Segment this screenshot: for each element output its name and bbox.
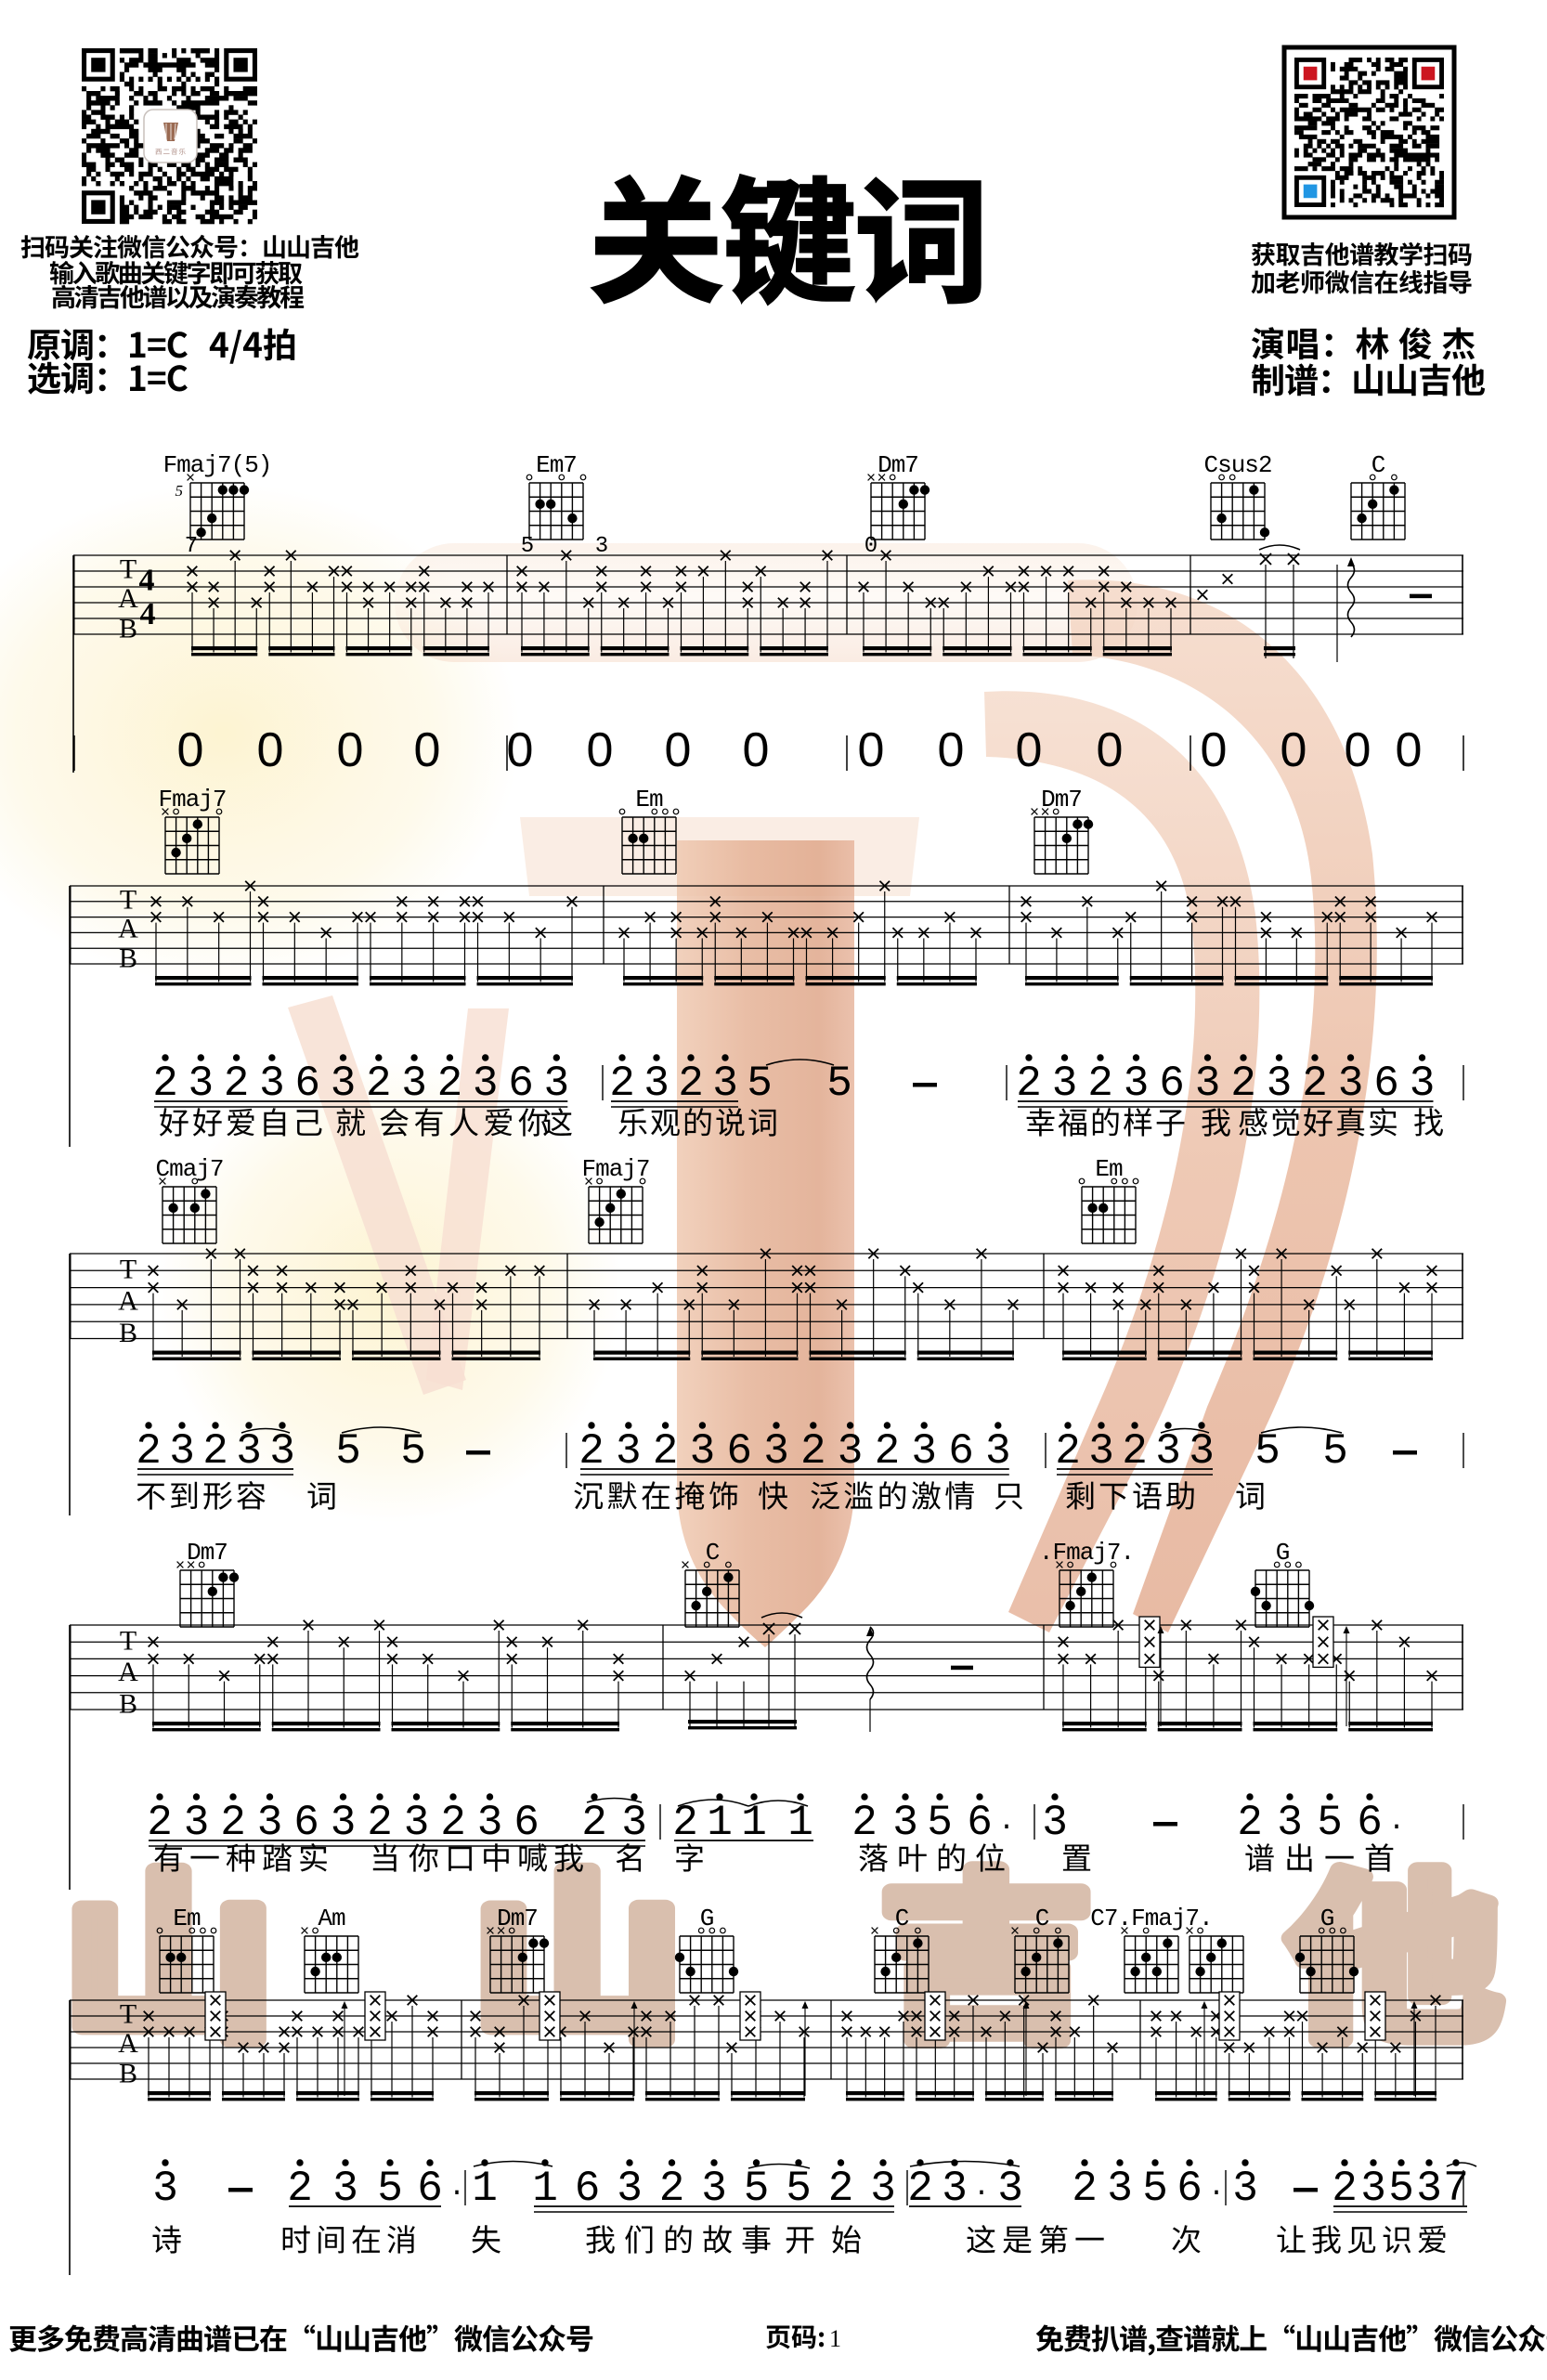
svg-text:容: 容: [236, 1472, 270, 1516]
svg-text:的: 的: [1090, 1099, 1124, 1143]
svg-text:掩: 掩: [675, 1472, 709, 1516]
svg-text:3: 3: [269, 1427, 295, 1476]
svg-text:子: 子: [1155, 1099, 1189, 1143]
svg-text:3: 3: [942, 2165, 968, 2213]
svg-text:3: 3: [1155, 1427, 1181, 1476]
svg-text:观: 观: [650, 1099, 684, 1143]
svg-text:是: 是: [1002, 2216, 1036, 2260]
svg-text:说: 说: [715, 1099, 749, 1143]
svg-text:诗: 诗: [151, 2216, 186, 2260]
svg-text:快: 快: [758, 1472, 792, 1516]
svg-text:中: 中: [481, 1834, 515, 1879]
svg-text:3: 3: [1107, 2165, 1133, 2213]
svg-text:乐: 乐: [617, 1099, 652, 1143]
svg-text:Fmaj7(5): Fmaj7(5): [163, 451, 272, 479]
svg-text:5: 5: [377, 2165, 403, 2213]
svg-text:B: B: [119, 943, 137, 973]
svg-text:失: 失: [471, 2216, 505, 2260]
svg-text:0: 0: [507, 723, 534, 777]
svg-text:2: 2: [1122, 1427, 1148, 1476]
svg-text:0: 0: [587, 723, 614, 777]
svg-text:实: 实: [1368, 1099, 1402, 1143]
svg-text:B: B: [119, 1318, 137, 1348]
svg-text:Fmaj7: Fmaj7: [581, 1155, 649, 1183]
svg-text:3: 3: [985, 1427, 1011, 1476]
svg-text:落: 落: [858, 1834, 892, 1879]
svg-text:在: 在: [641, 1472, 675, 1516]
svg-text:4/4拍: 4/4拍: [209, 318, 297, 368]
svg-text:Csus2: Csus2: [1203, 451, 1271, 479]
svg-text:0: 0: [938, 723, 965, 777]
svg-text:这: 这: [966, 2216, 1000, 2260]
svg-text:的: 的: [877, 1472, 912, 1516]
svg-text:0: 0: [665, 723, 692, 777]
svg-text:3: 3: [616, 1427, 642, 1476]
svg-text:次: 次: [1171, 2216, 1205, 2260]
svg-text:更多免费高清曲谱已在“山山吉他”微信公众号: 更多免费高清曲谱已在“山山吉他”微信公众号: [8, 2316, 593, 2358]
svg-text:3: 3: [331, 1799, 357, 1847]
svg-text:0: 0: [257, 723, 284, 777]
svg-text:加老师微信在线指导: 加老师微信在线指导: [1251, 263, 1473, 299]
svg-text:3: 3: [595, 534, 608, 559]
svg-text:会: 会: [379, 1099, 413, 1143]
svg-text:0: 0: [1280, 723, 1307, 777]
svg-text:己: 己: [292, 1099, 327, 1143]
svg-text:间: 间: [316, 2216, 350, 2260]
svg-text:爱: 爱: [1417, 2216, 1451, 2260]
svg-text:我: 我: [553, 1834, 588, 1879]
svg-text:在: 在: [351, 2216, 385, 2260]
svg-text:T: T: [120, 884, 136, 915]
svg-text:0: 0: [1201, 723, 1228, 777]
svg-text:叶: 叶: [897, 1834, 931, 1879]
svg-text:Em7: Em7: [536, 451, 577, 479]
svg-text:到: 到: [169, 1472, 203, 1516]
svg-text:种: 种: [226, 1834, 260, 1879]
svg-text:A: A: [118, 1657, 138, 1687]
svg-text:2: 2: [800, 1427, 826, 1476]
svg-text:3: 3: [763, 1427, 789, 1476]
svg-text:1: 1: [707, 1799, 733, 1847]
svg-text:第: 第: [1038, 2216, 1072, 2260]
svg-text:1: 1: [472, 2165, 498, 2213]
svg-text:1: 1: [787, 1799, 813, 1847]
svg-text:名: 名: [615, 1834, 649, 1879]
svg-text:0: 0: [864, 534, 877, 559]
svg-text:识: 识: [1382, 2216, 1416, 2260]
svg-text:喊: 喊: [517, 1834, 552, 1879]
svg-text:0: 0: [743, 723, 770, 777]
svg-text:A: A: [118, 2028, 138, 2059]
svg-text:2: 2: [1072, 2165, 1098, 2213]
svg-text:1: 1: [741, 1799, 767, 1847]
svg-text:词: 词: [1235, 1472, 1269, 1516]
svg-text:3: 3: [1416, 2165, 1442, 2213]
svg-text:3: 3: [332, 2165, 358, 2213]
svg-text:5: 5: [335, 1427, 361, 1476]
svg-text:滥: 滥: [843, 1472, 877, 1516]
svg-text:5: 5: [786, 2165, 812, 2213]
svg-text:们: 们: [624, 2216, 658, 2260]
svg-text:6: 6: [575, 2165, 601, 2213]
svg-text:B: B: [119, 2058, 137, 2088]
svg-text:爱: 爱: [484, 1099, 518, 1143]
svg-text:B: B: [119, 1689, 137, 1720]
svg-text:Fmaj7: Fmaj7: [158, 786, 226, 813]
svg-text:高清吉他谱以及演奏教程: 高清吉他谱以及演奏教程: [51, 278, 305, 314]
svg-text:0: 0: [177, 723, 204, 777]
svg-text:3: 3: [690, 1427, 716, 1476]
svg-text:口: 口: [445, 1834, 479, 1879]
svg-text:·: ·: [448, 2178, 465, 2209]
svg-text:Em: Em: [173, 1905, 201, 1932]
svg-text:3: 3: [152, 2165, 178, 2213]
svg-text:2: 2: [136, 1427, 162, 1476]
svg-text:谱: 谱: [1244, 1834, 1279, 1879]
svg-text:选调：1=C: 选调：1=C: [27, 351, 188, 401]
svg-text:我: 我: [1201, 1099, 1235, 1143]
svg-text:2: 2: [875, 1427, 901, 1476]
svg-text:位: 位: [975, 1834, 1009, 1879]
svg-text:饰: 饰: [708, 1472, 743, 1516]
svg-text:一: 一: [1324, 1834, 1358, 1879]
svg-text:2: 2: [828, 2165, 854, 2213]
svg-text:·: ·: [1208, 2178, 1225, 2209]
svg-text:的: 的: [936, 1834, 970, 1879]
svg-text:2: 2: [287, 2165, 313, 2213]
svg-text:样: 样: [1123, 1099, 1157, 1143]
svg-text:5: 5: [744, 2165, 770, 2213]
svg-text:0: 0: [1345, 723, 1371, 777]
svg-text:好: 好: [1303, 1099, 1337, 1143]
svg-text:T: T: [120, 554, 136, 585]
svg-text:0: 0: [414, 723, 441, 777]
svg-text:3: 3: [911, 1427, 937, 1476]
svg-text:情: 情: [944, 1472, 978, 1516]
svg-text:词: 词: [306, 1472, 341, 1516]
svg-text:制谱：山山吉他: 制谱：山山吉他: [1251, 353, 1486, 403]
svg-text:字: 字: [674, 1834, 708, 1879]
svg-text:开: 开: [785, 2216, 819, 2260]
svg-text:A: A: [118, 583, 138, 614]
svg-text:3: 3: [617, 2165, 643, 2213]
svg-text:2: 2: [907, 2165, 933, 2213]
svg-text:我: 我: [1311, 2216, 1345, 2260]
svg-text:1: 1: [532, 2165, 558, 2213]
svg-text:让: 让: [1276, 2216, 1310, 2260]
svg-text:3: 3: [838, 1427, 864, 1476]
svg-text:的: 的: [663, 2216, 697, 2260]
svg-text:5: 5: [1322, 1427, 1348, 1476]
svg-text:0: 0: [1016, 723, 1043, 777]
svg-text:爱: 爱: [226, 1099, 260, 1143]
svg-text:形: 形: [202, 1472, 237, 1516]
svg-text:A: A: [118, 913, 138, 943]
svg-text:.Fmaj7.: .Fmaj7.: [1039, 1539, 1134, 1567]
svg-text:7: 7: [1443, 2165, 1469, 2213]
svg-text:Em: Em: [635, 786, 663, 813]
svg-text:好: 好: [192, 1099, 227, 1143]
svg-text:这: 这: [542, 1099, 577, 1143]
svg-text:2: 2: [659, 2165, 685, 2213]
svg-text:自: 自: [259, 1099, 293, 1143]
svg-text:T: T: [120, 1999, 136, 2030]
svg-text:5: 5: [400, 1427, 426, 1476]
svg-text:消: 消: [386, 2216, 421, 2260]
svg-text:下: 下: [1098, 1472, 1133, 1516]
svg-text:事: 事: [741, 2216, 775, 2260]
svg-text:0: 0: [1097, 723, 1124, 777]
svg-text:A: A: [118, 1285, 138, 1316]
svg-text:泛: 泛: [810, 1472, 844, 1516]
svg-text:5: 5: [175, 482, 184, 500]
svg-text:2: 2: [653, 1427, 679, 1476]
svg-text:2: 2: [1055, 1427, 1081, 1476]
svg-text:0: 0: [337, 723, 364, 777]
svg-text:3: 3: [997, 2165, 1023, 2213]
svg-text:不: 不: [136, 1472, 170, 1516]
svg-text:激: 激: [911, 1472, 945, 1516]
svg-text:时: 时: [280, 2216, 315, 2260]
svg-text:Em: Em: [1095, 1155, 1123, 1183]
svg-text:始: 始: [831, 2216, 865, 2260]
svg-text:5: 5: [1142, 2165, 1168, 2213]
svg-text:3: 3: [870, 2165, 896, 2213]
svg-text:2: 2: [1332, 2165, 1358, 2213]
svg-text:T: T: [120, 1255, 136, 1285]
svg-text:·: ·: [973, 2178, 990, 2209]
svg-text:见: 见: [1346, 2216, 1381, 2260]
svg-text:3: 3: [1189, 1427, 1215, 1476]
svg-text:首: 首: [1364, 1834, 1398, 1879]
svg-text:6: 6: [417, 2165, 443, 2213]
svg-text:免费扒谱,查谱就上“山山吉他”微信公众号: 免费扒谱,查谱就上“山山吉他”微信公众号: [1035, 2316, 1547, 2358]
svg-text:幸: 幸: [1025, 1099, 1059, 1143]
svg-text:踏: 踏: [262, 1834, 296, 1879]
svg-text:感: 感: [1238, 1099, 1272, 1143]
svg-text:剩: 剩: [1065, 1472, 1099, 1516]
svg-text:Am: Am: [318, 1905, 345, 1932]
svg-text:0: 0: [1396, 723, 1423, 777]
svg-text:有: 有: [153, 1834, 188, 1879]
svg-text:故: 故: [702, 2216, 736, 2260]
svg-text:有: 有: [414, 1099, 448, 1143]
svg-text:3: 3: [701, 2165, 727, 2213]
svg-text:C7.Fmaj7.: C7.Fmaj7.: [1090, 1905, 1212, 1932]
svg-text:T: T: [120, 1625, 136, 1656]
svg-text:福: 福: [1058, 1099, 1092, 1143]
svg-text:助: 助: [1165, 1472, 1200, 1516]
svg-text:6: 6: [1176, 2165, 1202, 2213]
svg-text:真: 真: [1335, 1099, 1370, 1143]
svg-text:就: 就: [335, 1099, 370, 1143]
svg-text:6: 6: [948, 1427, 974, 1476]
svg-text:我: 我: [585, 2216, 619, 2260]
svg-text:你: 你: [409, 1834, 443, 1879]
svg-text:沉: 沉: [573, 1472, 607, 1516]
svg-text:关键词: 关键词: [589, 135, 987, 331]
svg-text:B: B: [119, 613, 137, 644]
svg-text:词: 词: [747, 1099, 782, 1143]
svg-text:3: 3: [169, 1427, 195, 1476]
svg-text:1: 1: [829, 2325, 841, 2352]
svg-text:5: 5: [826, 1060, 852, 1108]
svg-text:一: 一: [1074, 2216, 1109, 2260]
svg-text:2: 2: [202, 1427, 228, 1476]
svg-text:2: 2: [578, 1427, 604, 1476]
svg-text:出: 出: [1284, 1834, 1319, 1879]
svg-text:3: 3: [236, 1427, 262, 1476]
svg-text:只: 只: [994, 1472, 1028, 1516]
svg-text:置: 置: [1061, 1834, 1096, 1879]
svg-text:觉: 觉: [1270, 1099, 1305, 1143]
svg-text:Cmaj7: Cmaj7: [155, 1155, 223, 1183]
svg-text:3: 3: [1360, 2165, 1386, 2213]
svg-text:7: 7: [185, 534, 198, 559]
svg-text:5: 5: [521, 534, 534, 559]
svg-text:实: 实: [298, 1834, 332, 1879]
svg-text:找: 找: [1413, 1099, 1448, 1143]
svg-text:好: 好: [159, 1099, 193, 1143]
svg-text:4: 4: [140, 597, 156, 631]
svg-text:一: 一: [189, 1834, 224, 1879]
svg-text:3: 3: [1088, 1427, 1114, 1476]
svg-text:语: 语: [1132, 1472, 1166, 1516]
svg-text:6: 6: [726, 1427, 752, 1476]
svg-text:5: 5: [1254, 1427, 1280, 1476]
svg-text:4: 4: [139, 563, 155, 597]
svg-text:页码:: 页码:: [765, 2318, 825, 2355]
svg-text:默: 默: [607, 1472, 642, 1516]
svg-text:3: 3: [1232, 2165, 1258, 2213]
svg-text:5: 5: [1388, 2165, 1414, 2213]
svg-text:人: 人: [448, 1099, 483, 1143]
svg-text:西二音乐: 西二音乐: [155, 147, 187, 157]
svg-text:当: 当: [370, 1834, 404, 1879]
svg-text:的: 的: [682, 1099, 717, 1143]
svg-text:0: 0: [858, 723, 885, 777]
